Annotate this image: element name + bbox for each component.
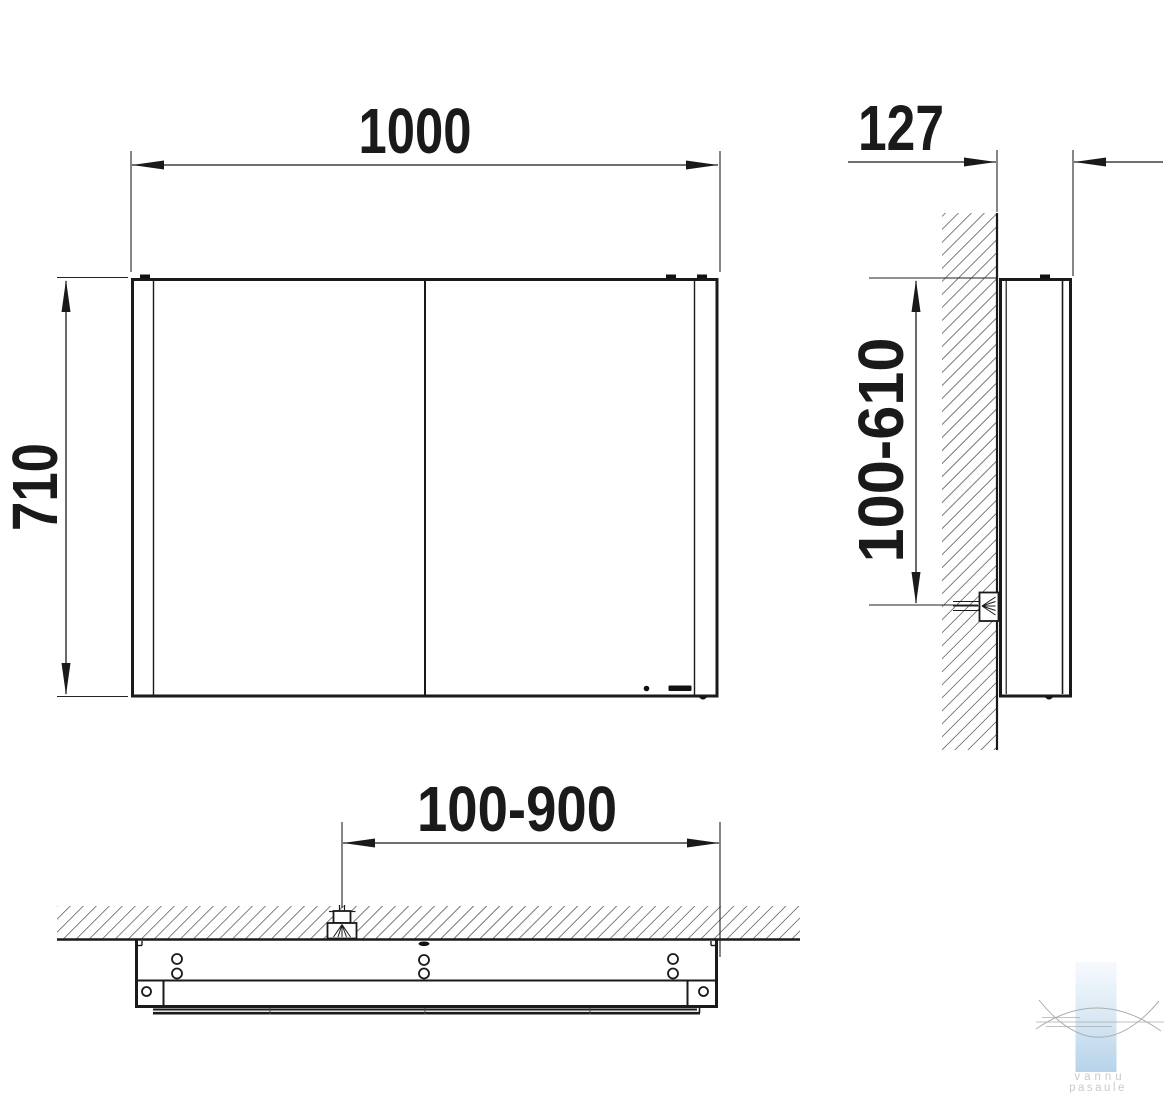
watermark-blue-bar xyxy=(1076,962,1117,1072)
arrowhead-left xyxy=(132,161,164,170)
side-mount-range-label: 100-610 xyxy=(845,338,917,563)
watermark-text-line2: pasaule xyxy=(1069,1082,1127,1093)
front-handle-notch xyxy=(699,697,708,700)
arrowhead-down xyxy=(62,663,71,695)
arrowhead-down xyxy=(912,572,921,604)
front-mounting-tab-right-2 xyxy=(697,275,707,279)
wall-section-hatching xyxy=(942,213,996,750)
arrowhead-left xyxy=(343,839,375,848)
technical-drawing-page: 1000 710 xyxy=(0,0,1165,1093)
front-brand-logo-mark xyxy=(669,686,692,692)
front-height-dimension: 710 xyxy=(0,278,128,697)
front-width-dimension: 1000 xyxy=(131,95,720,272)
front-height-label: 710 xyxy=(0,443,71,531)
bottom-view xyxy=(57,905,800,1015)
cable-slot xyxy=(419,942,430,947)
arrowhead-right xyxy=(686,161,718,170)
arrowhead-up xyxy=(62,280,71,312)
screw-holes xyxy=(142,942,708,997)
side-depth-dimension: 127 xyxy=(848,92,1163,276)
arrowhead-left xyxy=(1074,158,1106,167)
arrowhead-up xyxy=(912,280,921,312)
side-view xyxy=(942,213,1071,750)
mirror-cabinet-dimension-drawing: 1000 710 xyxy=(0,0,1165,1093)
side-depth-label: 127 xyxy=(858,92,944,164)
front-mounting-tab-right-1 xyxy=(666,275,676,279)
arrowhead-right xyxy=(964,158,996,167)
front-width-label: 1000 xyxy=(359,95,472,167)
front-sensor-dot xyxy=(644,686,650,692)
bottom-range-label: 100-900 xyxy=(417,773,617,845)
connection-box-inner xyxy=(334,911,351,923)
front-view xyxy=(133,275,718,700)
side-cabinet-outline xyxy=(1001,280,1071,697)
side-mounting-tab xyxy=(1040,275,1050,279)
side-handle-notch xyxy=(1045,697,1054,700)
arrowhead-right xyxy=(687,839,719,848)
watermark-logo: vannu pasaule xyxy=(1036,962,1164,1093)
wall-section-hatching xyxy=(57,906,800,939)
front-mounting-tab-left xyxy=(140,275,150,279)
